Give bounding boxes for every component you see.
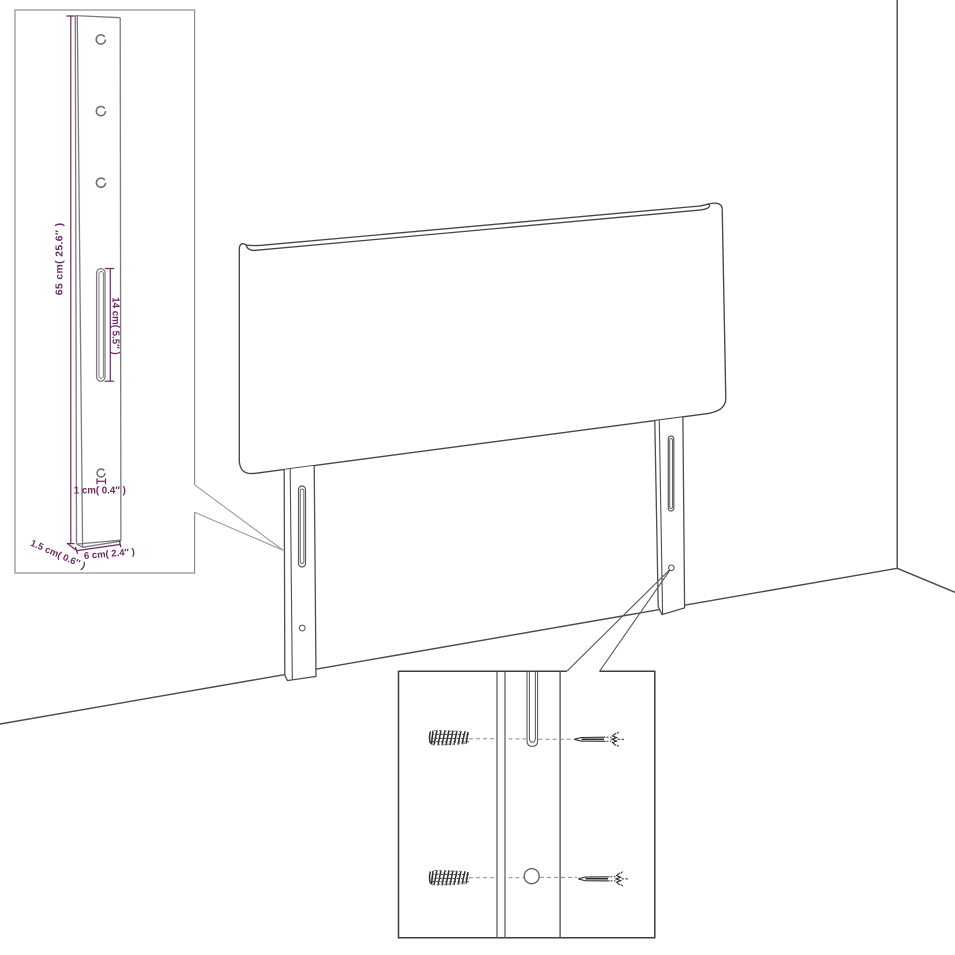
svg-text:65 cm( 25.6″ ): 65 cm( 25.6″ ): [54, 223, 65, 296]
svg-text:14 cm( 5.5″ ): 14 cm( 5.5″ ): [109, 297, 120, 354]
svg-text:1 cm( 0.4″ ): 1 cm( 0.4″ ): [74, 485, 126, 496]
